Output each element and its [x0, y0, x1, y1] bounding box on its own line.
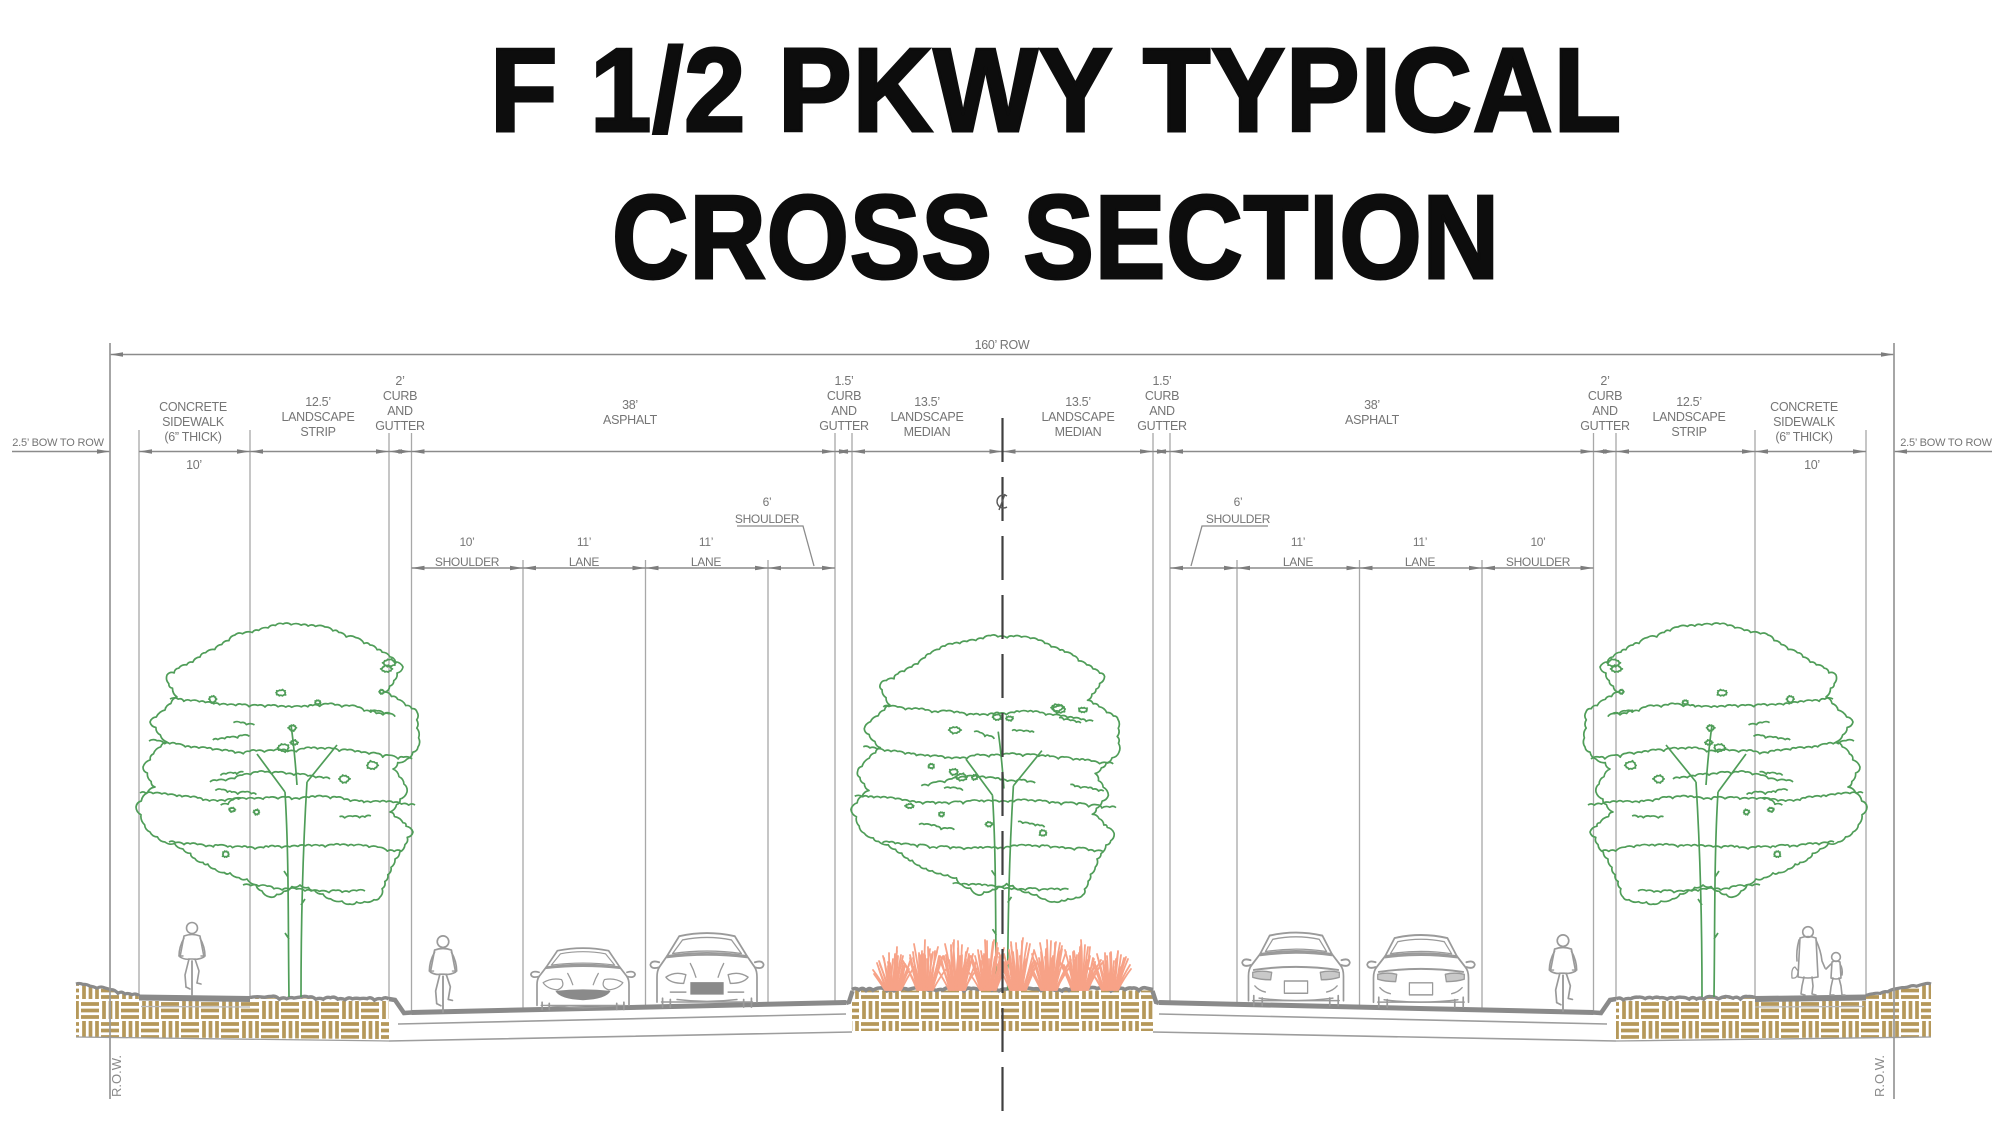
svg-text:LANE: LANE [569, 555, 599, 569]
svg-text:2.5’ BOW TO ROW: 2.5’ BOW TO ROW [1900, 437, 1992, 449]
svg-text:R.O.W.: R.O.W. [109, 1055, 124, 1097]
svg-text:AND: AND [1149, 404, 1175, 418]
svg-text:GUTTER: GUTTER [375, 419, 425, 433]
svg-text:SHOULDER: SHOULDER [735, 512, 800, 526]
svg-text:CONCRETE: CONCRETE [159, 400, 227, 414]
svg-text:LANE: LANE [1283, 555, 1313, 569]
svg-text:11’: 11’ [577, 535, 591, 549]
svg-text:1.5’: 1.5’ [835, 374, 854, 388]
svg-text:12.5’: 12.5’ [1676, 395, 1702, 409]
svg-text:CURB: CURB [827, 389, 861, 403]
svg-text:13.5’: 13.5’ [1065, 395, 1091, 409]
svg-text:GUTTER: GUTTER [819, 419, 869, 433]
svg-text:160’ ROW: 160’ ROW [975, 338, 1030, 352]
svg-text:R.O.W.: R.O.W. [1872, 1055, 1887, 1097]
svg-text:F 1/2 PKWY TYPICAL: F 1/2 PKWY TYPICAL [490, 24, 1622, 157]
svg-text:LANDSCAPE: LANDSCAPE [1652, 410, 1725, 424]
svg-text:SHOULDER: SHOULDER [1206, 512, 1271, 526]
svg-text:AND: AND [831, 404, 857, 418]
svg-text:AND: AND [387, 404, 413, 418]
svg-text:10’: 10’ [1804, 458, 1820, 472]
svg-text:11’: 11’ [1291, 535, 1305, 549]
svg-text:2.5’ BOW TO ROW: 2.5’ BOW TO ROW [12, 437, 104, 449]
svg-text:10’: 10’ [1530, 535, 1545, 549]
svg-text:CROSS SECTION: CROSS SECTION [612, 171, 1500, 304]
svg-text:STRIP: STRIP [300, 425, 335, 439]
svg-text:SIDEWALK: SIDEWALK [162, 415, 225, 429]
svg-text:MEDIAN: MEDIAN [1055, 425, 1102, 439]
svg-text:2’: 2’ [1600, 374, 1609, 388]
svg-text:STRIP: STRIP [1671, 425, 1706, 439]
svg-text:GUTTER: GUTTER [1137, 419, 1187, 433]
svg-text:AND: AND [1592, 404, 1618, 418]
svg-text:LANDSCAPE: LANDSCAPE [890, 410, 963, 424]
svg-text:LANDSCAPE: LANDSCAPE [1041, 410, 1114, 424]
svg-text:SIDEWALK: SIDEWALK [1773, 415, 1836, 429]
svg-text:10’: 10’ [186, 458, 202, 472]
svg-text:13.5’: 13.5’ [914, 395, 940, 409]
svg-text:10’: 10’ [459, 535, 474, 549]
svg-text:6’: 6’ [763, 495, 772, 509]
svg-text:CONCRETE: CONCRETE [1770, 400, 1838, 414]
svg-text:CURB: CURB [1588, 389, 1622, 403]
svg-text:LANDSCAPE: LANDSCAPE [281, 410, 354, 424]
svg-text:12.5’: 12.5’ [305, 395, 331, 409]
svg-text:SHOULDER: SHOULDER [435, 555, 500, 569]
svg-text:(6” THICK): (6” THICK) [1775, 430, 1832, 444]
svg-text:MEDIAN: MEDIAN [904, 425, 951, 439]
svg-text:38’: 38’ [1364, 398, 1380, 412]
svg-text:GUTTER: GUTTER [1580, 419, 1630, 433]
svg-text:38’: 38’ [622, 398, 638, 412]
svg-text:SHOULDER: SHOULDER [1506, 555, 1571, 569]
svg-text:11’: 11’ [1413, 535, 1427, 549]
svg-text:CURB: CURB [383, 389, 417, 403]
svg-text:1.5’: 1.5’ [1153, 374, 1172, 388]
svg-text:ASPHALT: ASPHALT [603, 413, 658, 427]
svg-text:ASPHALT: ASPHALT [1345, 413, 1400, 427]
svg-text:(6” THICK): (6” THICK) [164, 430, 221, 444]
svg-text:LANE: LANE [691, 555, 721, 569]
svg-text:11’: 11’ [699, 535, 713, 549]
svg-text:LANE: LANE [1405, 555, 1435, 569]
svg-text:2’: 2’ [395, 374, 404, 388]
svg-text:6’: 6’ [1234, 495, 1243, 509]
svg-text:CURB: CURB [1145, 389, 1179, 403]
